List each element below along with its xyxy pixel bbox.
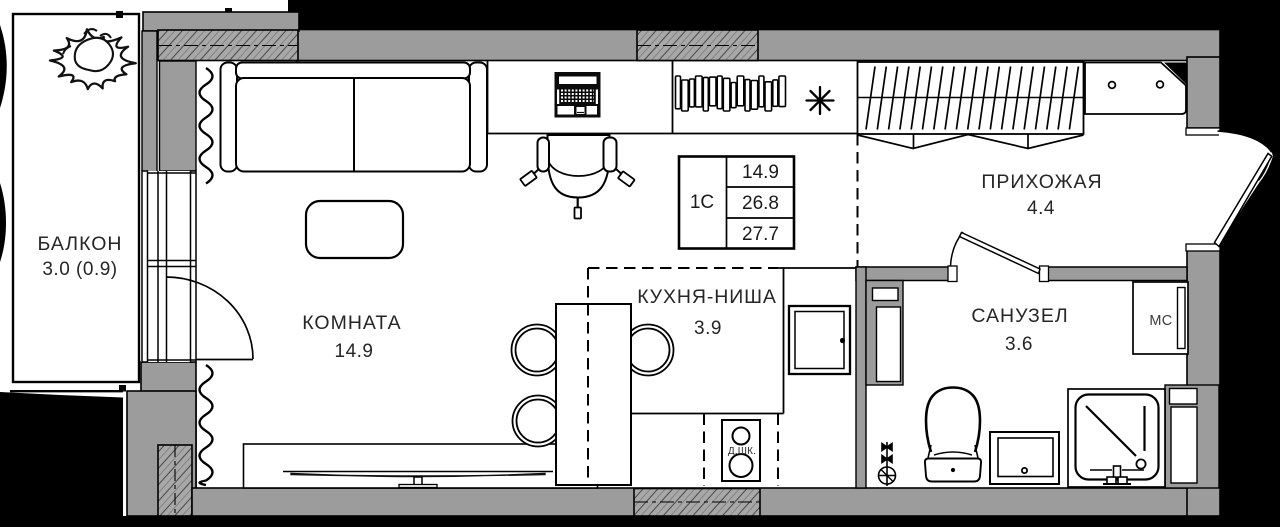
svg-text:27.7: 27.7 [742,224,779,245]
svg-text:3.9: 3.9 [694,318,722,339]
svg-text:26.8: 26.8 [742,193,779,214]
svg-text:3.6: 3.6 [1005,334,1033,355]
svg-text:3.0 (0.9): 3.0 (0.9) [42,259,117,280]
svg-text:Д.ШК.: Д.ШК. [728,446,756,457]
svg-text:САНУЗЕЛ: САНУЗЕЛ [971,305,1068,327]
svg-text:1С: 1С [690,192,714,213]
svg-text:ПРИХОЖАЯ: ПРИХОЖАЯ [981,171,1102,193]
svg-text:МС: МС [1149,313,1172,329]
svg-text:14.9: 14.9 [335,341,374,362]
svg-text:БАЛКОН: БАЛКОН [38,233,123,255]
svg-text:14.9: 14.9 [742,162,779,183]
svg-text:КОМНАТА: КОМНАТА [302,312,401,334]
svg-text:КУХНЯ-НИША: КУХНЯ-НИША [637,286,777,308]
svg-text:4.4: 4.4 [1027,198,1055,219]
